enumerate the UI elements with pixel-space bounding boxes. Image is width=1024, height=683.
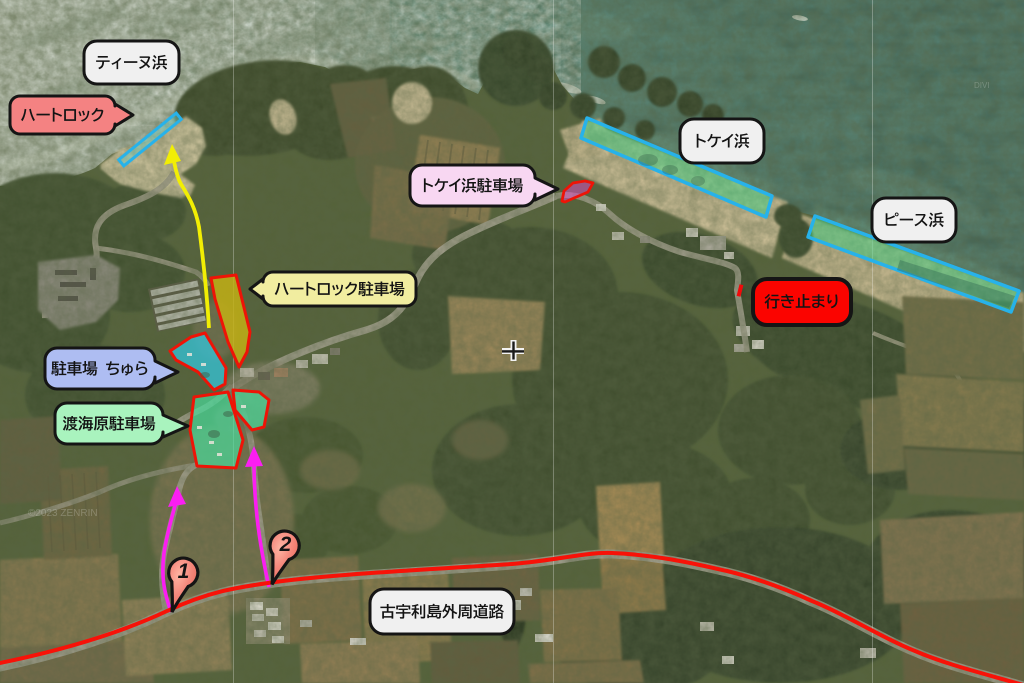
svg-text:1: 1	[178, 560, 190, 583]
svg-text:DIVI: DIVI	[974, 81, 990, 90]
svg-text:2: 2	[279, 533, 292, 556]
svg-text:©2023 ZENRIN: ©2023 ZENRIN	[28, 508, 98, 519]
